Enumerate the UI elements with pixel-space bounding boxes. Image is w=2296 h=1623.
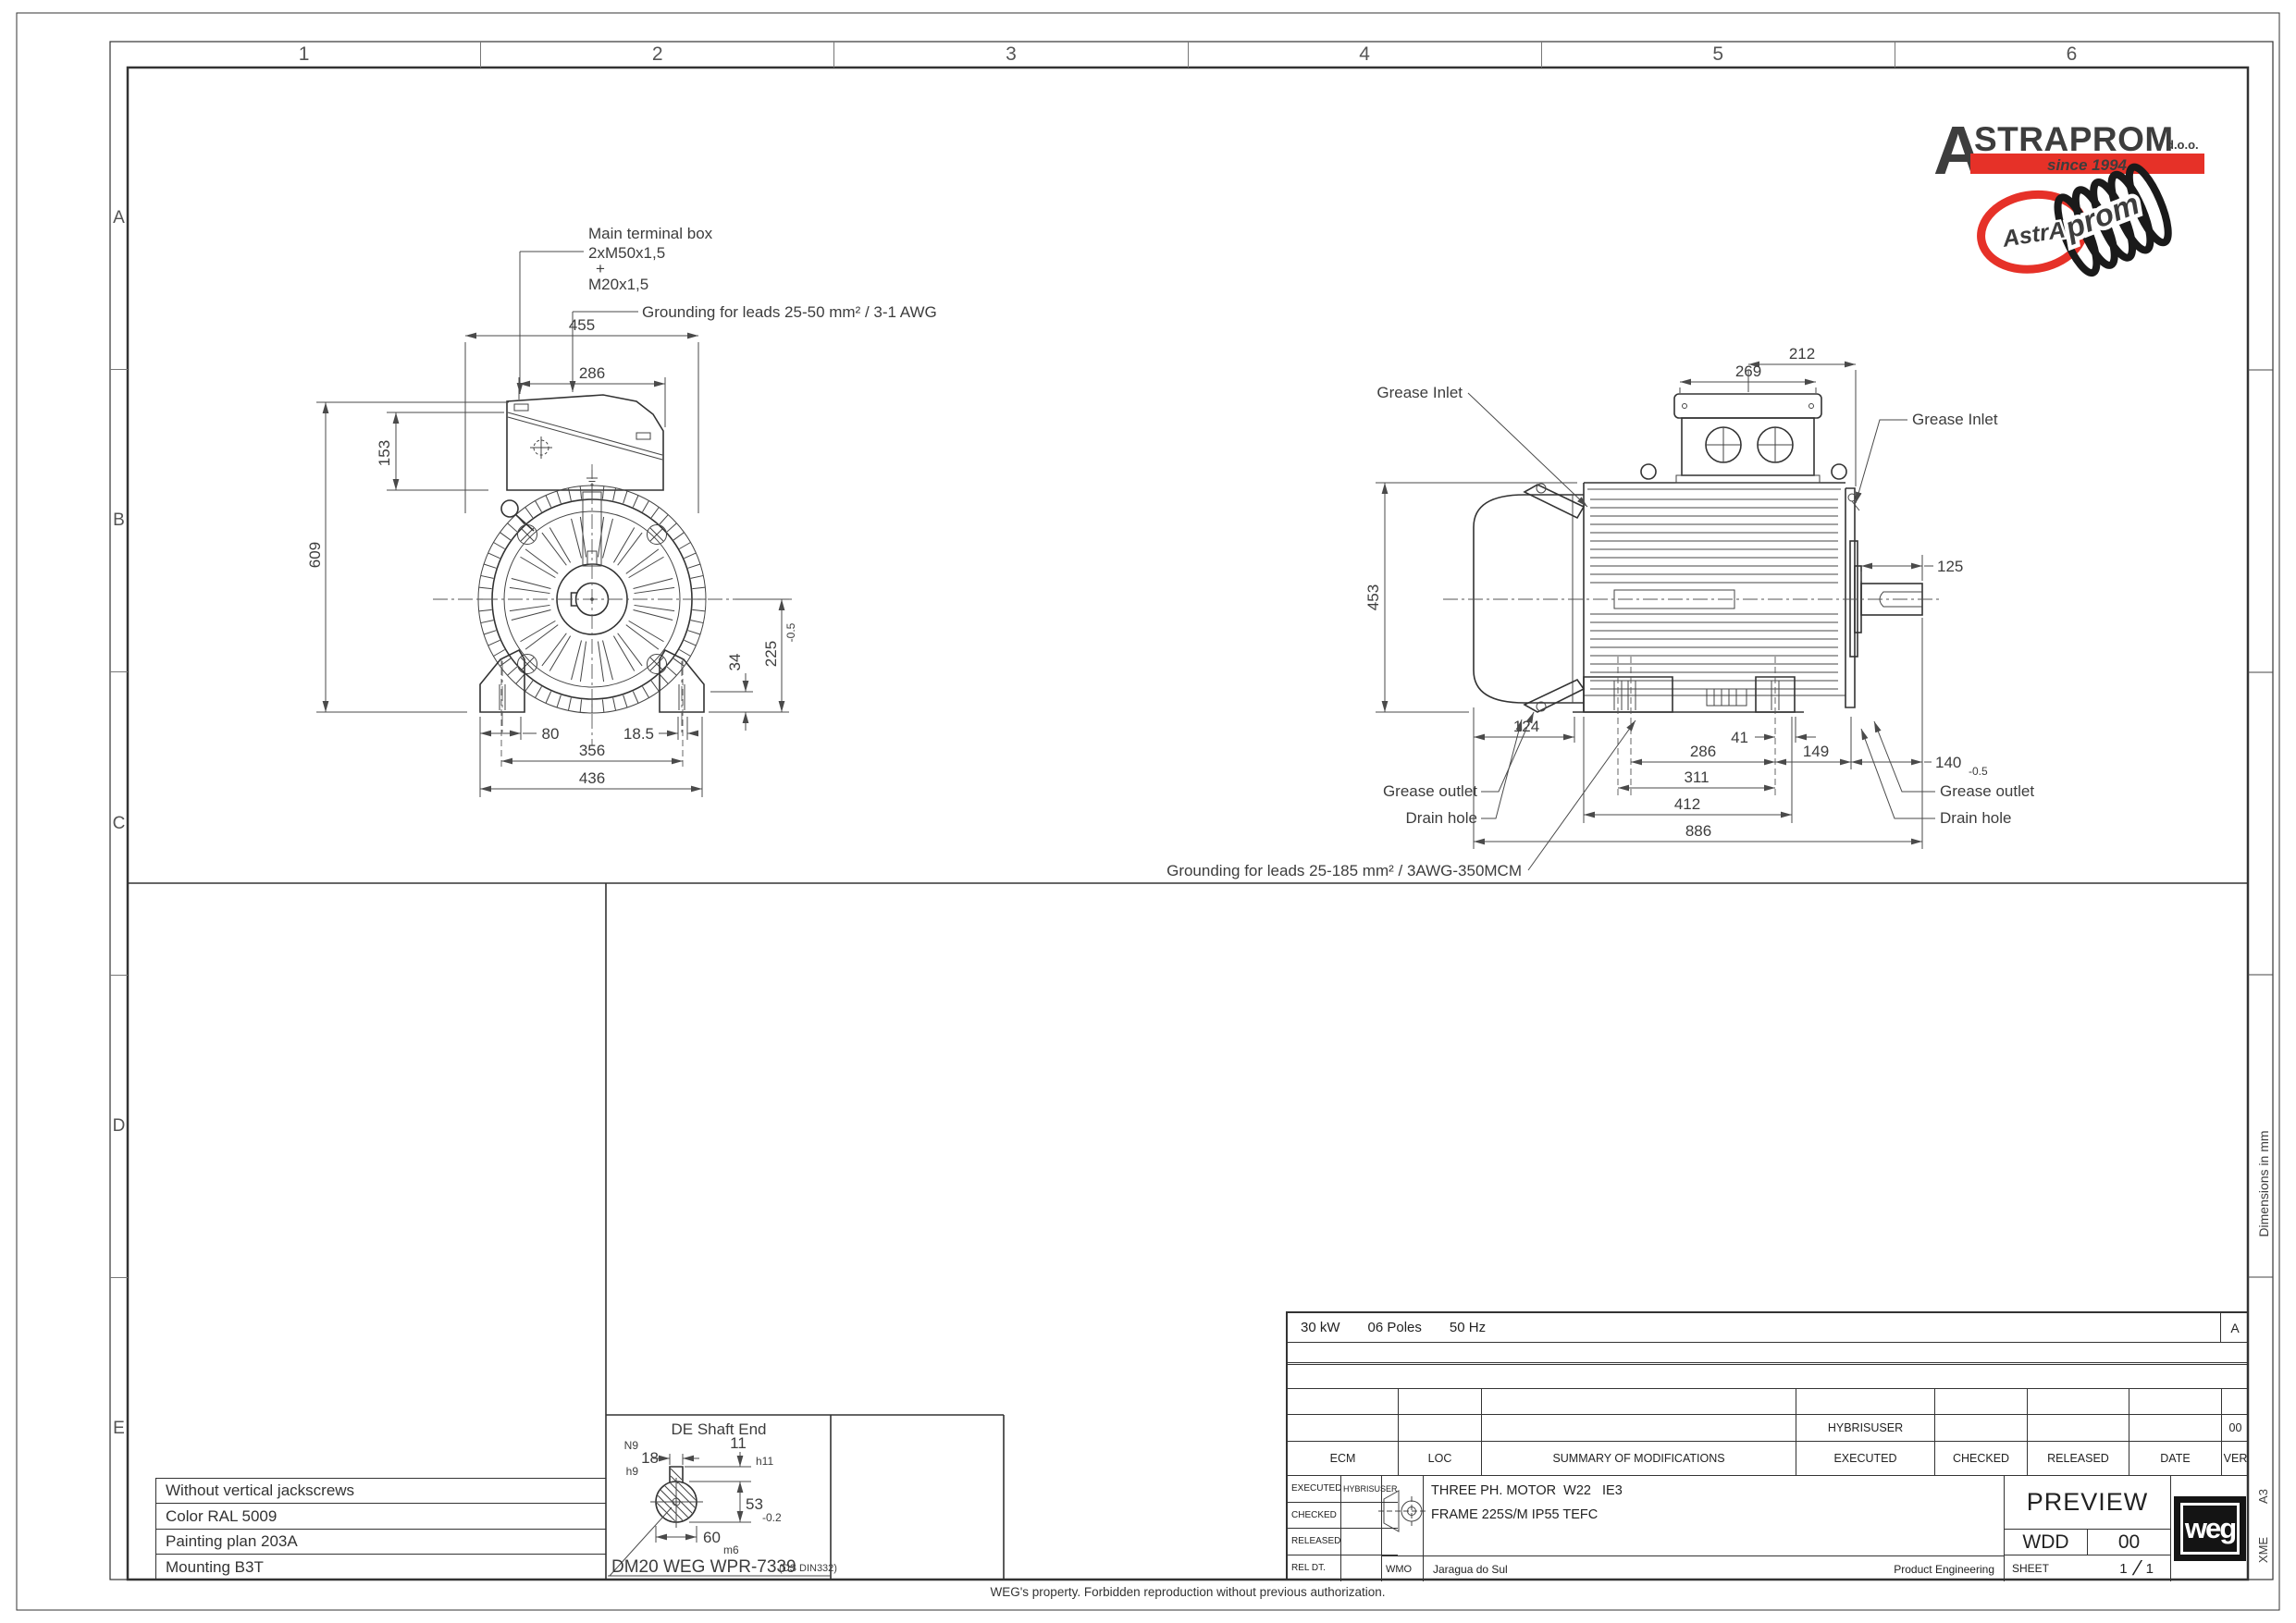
dim-140-tol: -0.5 (1969, 765, 1988, 778)
weg-logo: weg (2174, 1496, 2246, 1561)
dim-diameter: 60 (703, 1529, 721, 1546)
frame-column-2: 2 (481, 42, 834, 68)
dim-key-tol-bottom: h9 (626, 1465, 639, 1478)
dim-286-side: 286 (1690, 743, 1716, 760)
dim-key-seat: 53 (746, 1495, 763, 1513)
center-hole-std: (DS DIN332) (779, 1563, 837, 1574)
dim-key-tol-top: N9 (624, 1439, 639, 1452)
center-hole-note: DM20 WEG WPR-7339 (611, 1557, 796, 1577)
dim-80: 80 (542, 725, 560, 743)
frame-column-5: 5 (1542, 42, 1895, 68)
mod-header-checked: CHECKED (1935, 1442, 2028, 1476)
mod-header-ver: VER (2222, 1442, 2249, 1476)
frame-row-band: A B C D E (110, 68, 128, 1580)
dim-140: 140 (1935, 754, 1961, 771)
dimensions-note: Dimensions in mm (2256, 1130, 2271, 1236)
dim-key-height: 11 (730, 1434, 747, 1452)
rating-power: 30 kW (1301, 1320, 1340, 1335)
dim-455: 455 (569, 316, 595, 334)
projection-symbol-cell (1382, 1476, 1424, 1555)
description-cell: THREE PH. MOTOR W22 IE3 FRAME 225S/M IP5… (1424, 1476, 2004, 1555)
label-drain-hole-left: Drain hole (1406, 809, 1478, 827)
signature-table: EXECUTEDHYBRISUSER CHECKED RELEASED REL … (1288, 1476, 1382, 1581)
shaft-detail-title: DE Shaft End (671, 1420, 766, 1438)
label-grease-outlet-left: Grease outlet (1383, 782, 1477, 800)
origin-code: WMO (1382, 1556, 1424, 1581)
doc-type: WDD (2005, 1530, 2088, 1555)
side-view-dimensions: 212 269 453 125 Grease Inlet Grease Inle… (1167, 345, 2034, 879)
label-gland-2: M20x1,5 (588, 276, 648, 293)
sign-label: EXECUTED (1288, 1476, 1341, 1502)
weg-logo-text: weg (2180, 1503, 2240, 1555)
mod-header-loc: LOC (1399, 1442, 1482, 1476)
terminal-box-side (1674, 394, 1821, 483)
note-row: Without vertical jackscrews (156, 1479, 606, 1504)
dim-269: 269 (1735, 363, 1761, 380)
dim-key-width: 18 (641, 1449, 659, 1467)
dim-34: 34 (726, 654, 744, 671)
mod-entry-executed: HYBRISUSER (1796, 1415, 1935, 1442)
dim-225-tol: -0.5 (784, 622, 797, 642)
dim-key-height-tol: h11 (756, 1455, 773, 1468)
frame-row-d: D (110, 976, 128, 1278)
dim-311: 311 (1684, 768, 1709, 786)
revision-badge: A (2220, 1313, 2249, 1342)
note-row: Mounting B3T (156, 1555, 606, 1580)
dim-key-seat-tol: -0.2 (762, 1511, 782, 1524)
spacer-row (1288, 1365, 2249, 1389)
dim-436: 436 (579, 769, 605, 787)
title-block: 30 kW 06 Poles 50 Hz A HYBRISUSER 00 ECM… (1286, 1311, 2249, 1580)
mod-header-summary: SUMMARY OF MODIFICATIONS (1482, 1442, 1796, 1476)
rating-poles: 06 Poles (1368, 1320, 1422, 1335)
dim-153: 153 (376, 440, 393, 466)
sheet-slash: / (2129, 1556, 2143, 1580)
motor-description: THREE PH. MOTOR W22 IE3 (1431, 1483, 2004, 1498)
frame-column-1: 1 (128, 42, 481, 68)
frame-column-4: 4 (1189, 42, 1542, 68)
rating-row: 30 kW 06 Poles 50 Hz A (1288, 1313, 2249, 1343)
astraprom-name: STRAPROM (1974, 120, 2174, 158)
rating-frequency: 50 Hz (1450, 1320, 1486, 1335)
astraprom-badge: AstrA prom (1973, 160, 2179, 292)
sheet-label: SHEET (2012, 1562, 2049, 1575)
label-grounding-front: Grounding for leads 25-50 mm² / 3-1 AWG (642, 303, 937, 321)
sign-label: CHECKED (1288, 1503, 1341, 1529)
sheet-number: 1 (2119, 1561, 2127, 1577)
format-code: XME (2256, 1537, 2270, 1564)
status-label: PREVIEW (2005, 1476, 2170, 1530)
terminal-box-front (507, 395, 663, 490)
astraprom-logo: A STRAPROM d.o.o. since 1994 (1933, 112, 2204, 189)
mod-entry-ver: 00 (2222, 1415, 2249, 1442)
dim-149: 149 (1803, 743, 1829, 760)
frame-description: FRAME 225S/M IP55 TEFC (1431, 1507, 2004, 1522)
label-grounding-side: Grounding for leads 25-185 mm² / 3AWG-35… (1167, 862, 1522, 879)
sign-label: REL DT. (1288, 1555, 1341, 1582)
front-view-dimensions: Main terminal box 2xM50x1,5 + M20x1,5 Gr… (306, 225, 937, 797)
weg-logo-cell: weg (2171, 1476, 2249, 1581)
finish-notes-table: Without vertical jackscrews Color RAL 50… (155, 1478, 606, 1580)
frame-row-a: A (110, 68, 128, 370)
label-grease-outlet-right: Grease outlet (1940, 782, 2034, 800)
dim-125: 125 (1937, 558, 1963, 575)
badge-astra-text: AstrA (2000, 216, 2068, 252)
mod-header-date: DATE (2129, 1442, 2222, 1476)
dim-609: 609 (306, 542, 324, 568)
note-row: Color RAL 5009 (156, 1504, 606, 1529)
frame-column-3: 3 (834, 42, 1188, 68)
label-grease-inlet-right: Grease Inlet (1912, 411, 1998, 428)
modifications-table: HYBRISUSER 00 ECM LOC SUMMARY OF MODIFIC… (1288, 1389, 2249, 1476)
property-note: WEG's property. Forbidden reproduction w… (128, 1585, 2248, 1599)
dim-356: 356 (579, 742, 605, 759)
format-label: A3 (2256, 1489, 2270, 1504)
department-name: Product Engineering (1894, 1563, 2004, 1576)
spacer-row (1288, 1343, 2249, 1365)
dim-286-front: 286 (579, 364, 605, 382)
site-name: Jaragua do Sul (1424, 1563, 1508, 1576)
dim-41: 41 (1731, 729, 1748, 746)
sign-label: RELEASED (1288, 1529, 1341, 1555)
frame-column-6: 6 (1895, 42, 2248, 68)
drawing-sheet: Dimensions in mm A3 XME (0, 0, 2296, 1623)
frame-column-band: 1 2 3 4 5 6 (128, 42, 2248, 68)
frame-row-e: E (110, 1278, 128, 1580)
motor-front-view (433, 395, 792, 745)
dim-diameter-tol: m6 (723, 1543, 739, 1556)
dim-18-5: 18.5 (623, 725, 654, 743)
side-feet (1573, 677, 1804, 712)
shaft-end-detail: DE Shaft End 18 N9 h9 11 h11 53 -0.2 60 … (608, 1409, 837, 1593)
mod-header-executed: EXECUTED (1796, 1442, 1935, 1476)
astraprom-suffix: d.o.o. (2166, 138, 2199, 152)
sheet-total: 1 (2146, 1561, 2154, 1577)
dim-124: 124 (1513, 718, 1539, 735)
dim-212: 212 (1789, 345, 1815, 363)
motor-side-view (1443, 394, 1943, 712)
frame-row-c: C (110, 672, 128, 975)
dim-453: 453 (1364, 584, 1382, 610)
dim-886: 886 (1685, 822, 1711, 840)
doc-version: 00 (2088, 1530, 2170, 1555)
mod-header-released: RELEASED (2028, 1442, 2129, 1476)
label-drain-hole-right: Drain hole (1940, 809, 2012, 827)
label-grease-inlet-left: Grease Inlet (1376, 384, 1463, 401)
mod-header-ecm: ECM (1288, 1442, 1399, 1476)
label-main-terminal-box: Main terminal box (588, 225, 713, 242)
dim-412: 412 (1674, 795, 1700, 813)
frame-row-b: B (110, 370, 128, 672)
note-row: Painting plan 203A (156, 1530, 606, 1555)
dim-225: 225 (762, 641, 780, 667)
